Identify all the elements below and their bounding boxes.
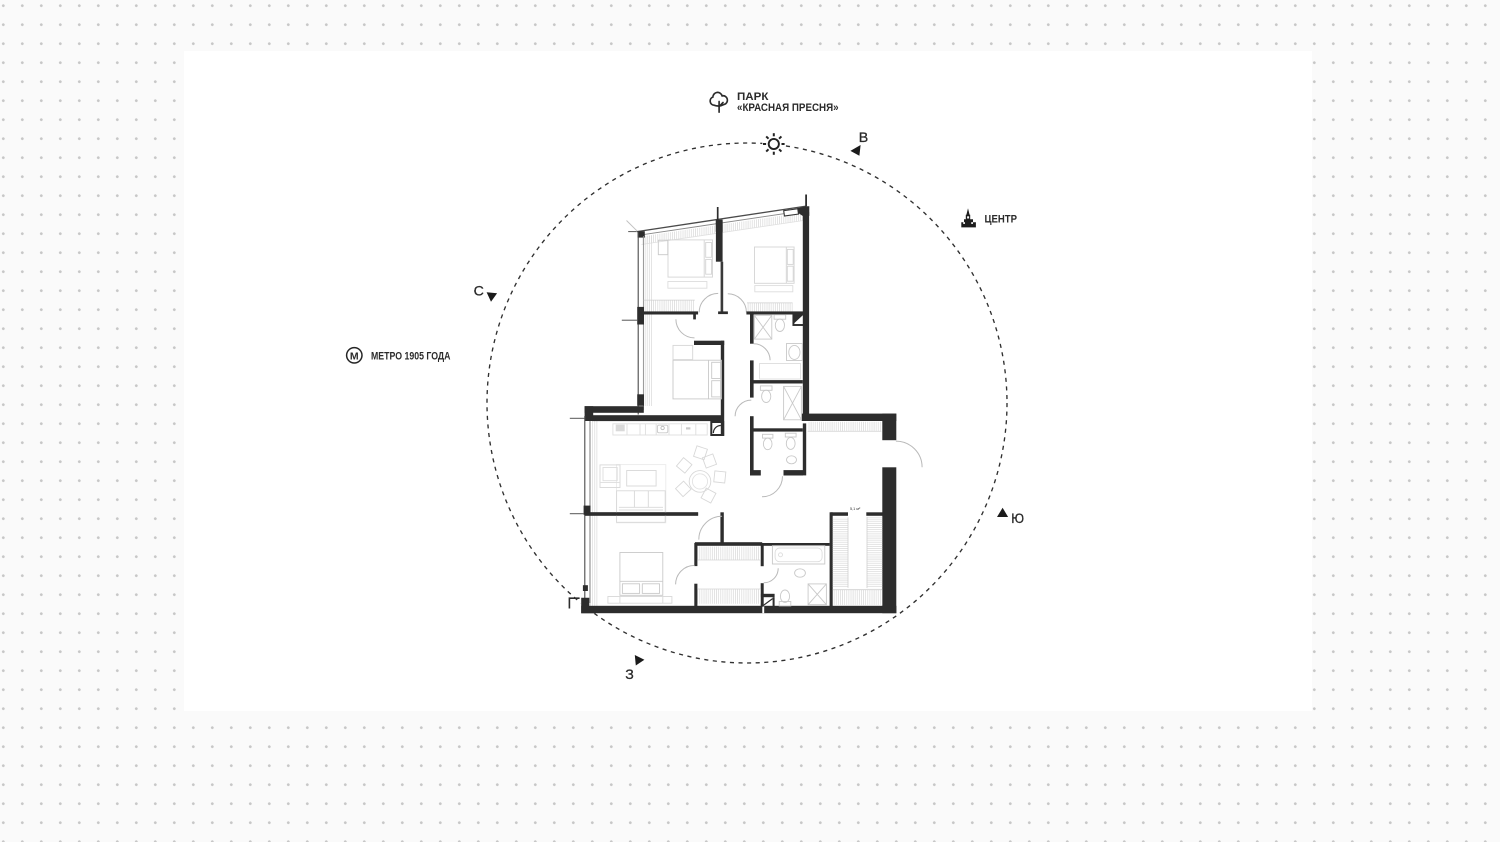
svg-text:Ю: Ю xyxy=(1011,511,1024,527)
svg-text:М: М xyxy=(350,350,359,362)
svg-text:ЦЕНТР: ЦЕНТР xyxy=(985,213,1018,225)
svg-text:«КРАСНАЯ ПРЕСНЯ»: «КРАСНАЯ ПРЕСНЯ» xyxy=(737,102,839,114)
svg-text:МЕТРО 1905 ГОДА: МЕТРО 1905 ГОДА xyxy=(371,350,451,362)
svg-text:5,1 м²: 5,1 м² xyxy=(850,507,861,511)
svg-text:В: В xyxy=(859,130,868,146)
svg-text:З: З xyxy=(625,667,634,683)
svg-text:С: С xyxy=(474,283,484,299)
